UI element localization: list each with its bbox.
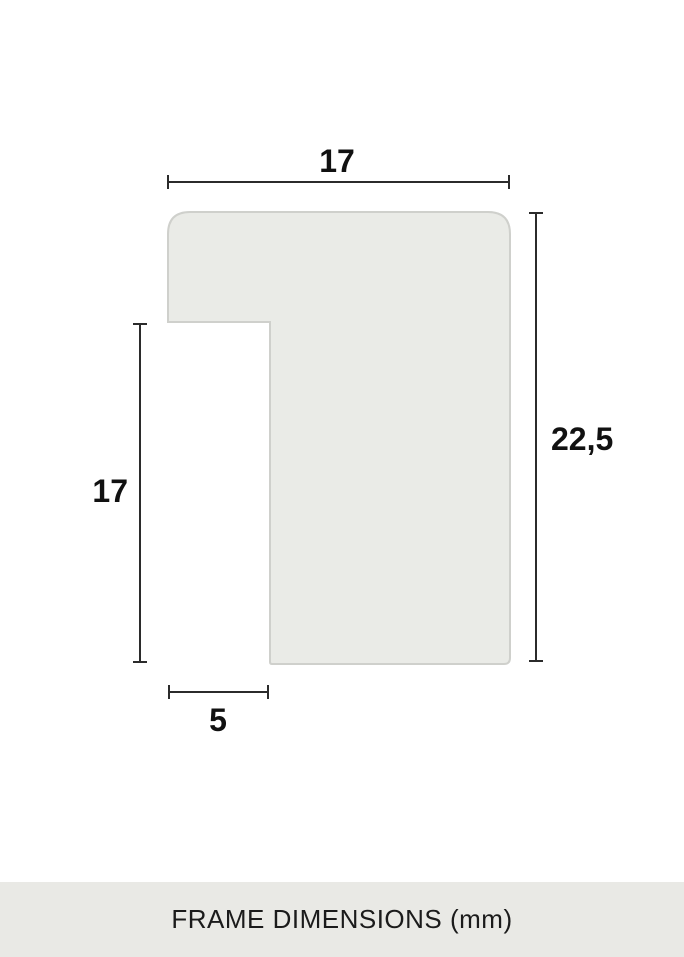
footer-caption-text: FRAME DIMENSIONS (mm)	[171, 904, 512, 935]
dimension-value-left-height: 17	[68, 475, 128, 507]
dimension-value-top-width: 17	[297, 145, 377, 177]
dimension-line-bottom-width	[168, 691, 269, 693]
dimension-value-right-height: 22,5	[551, 423, 613, 455]
footer-caption-bar: FRAME DIMENSIONS (mm)	[0, 882, 684, 957]
dimension-line-right-height	[535, 212, 537, 662]
dimension-line-top-width	[167, 181, 510, 183]
frame-profile-path	[168, 212, 510, 664]
dimension-value-bottom-width: 5	[178, 704, 258, 736]
frame-dimensions-diagram: 17 22,5 17 5 FRAME DIMENSIONS (mm)	[0, 0, 684, 957]
dimension-line-left-height	[139, 323, 141, 663]
